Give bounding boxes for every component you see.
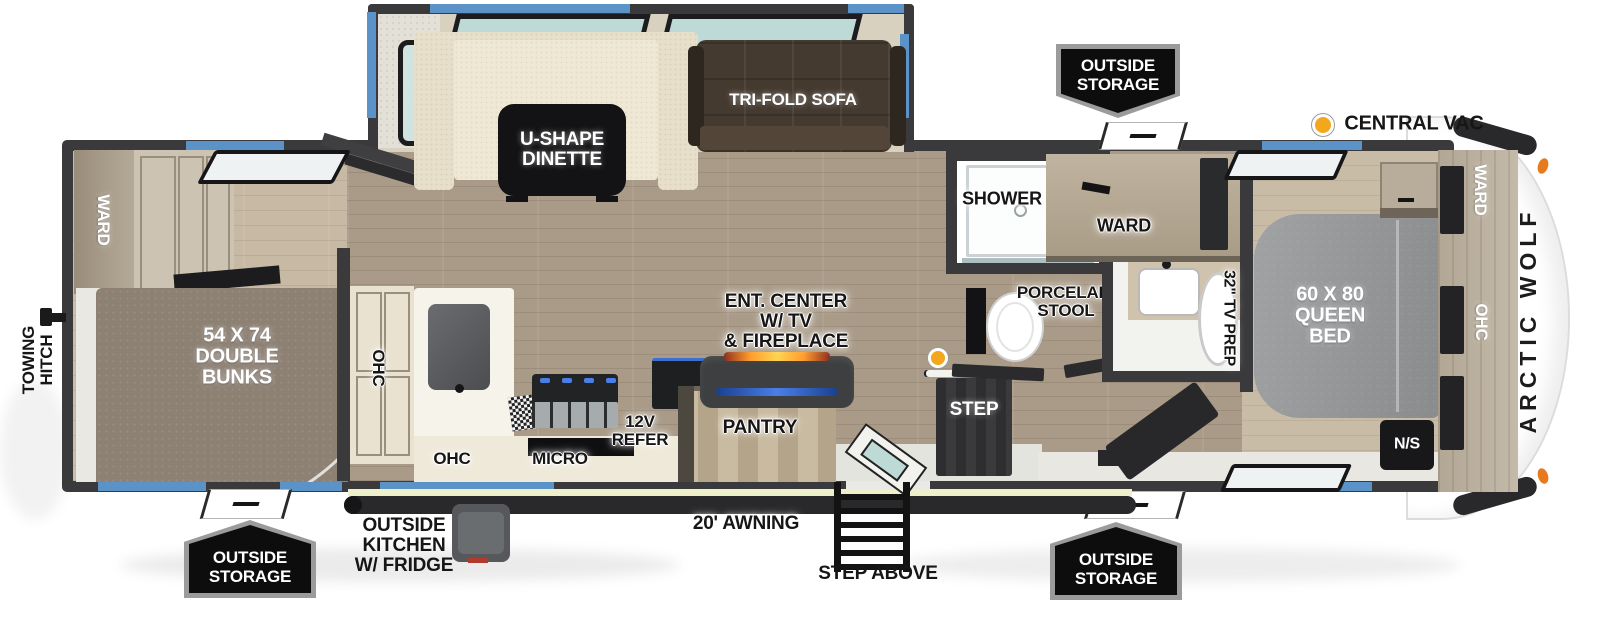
bunk-label: 54 X 74 DOUBLE BUNKS [195, 326, 278, 389]
faucet-icon [455, 384, 464, 393]
clearance-light-icon [1536, 157, 1550, 175]
bedroom-door-stub [1098, 450, 1124, 466]
cabinet-handle-icon [1398, 198, 1414, 202]
roof-vent [197, 150, 351, 184]
shower-label: SHOWER [962, 190, 1042, 209]
bedroom-wall [1240, 150, 1253, 392]
outside-storage-badge: OUTSIDE STORAGE [1050, 522, 1182, 600]
clearance-light-icon [1536, 467, 1550, 485]
outside-fridge-latch [468, 558, 488, 563]
tv-icon [716, 388, 838, 396]
window-strip [1262, 141, 1362, 150]
bath-ward-panel [1200, 158, 1228, 250]
step-above-label: STEP ABOVE [818, 564, 937, 584]
burner-icon [606, 378, 616, 383]
outside-storage-label: OUTSIDE STORAGE [1056, 56, 1180, 94]
headboard-slot [1440, 376, 1464, 450]
roof-vent [1223, 150, 1348, 180]
nightstand-label: N/S [1394, 437, 1420, 454]
bunk-ward-label: WARD [94, 194, 112, 245]
fireplace-icon [724, 352, 830, 361]
stool-label: PORCELAIN STOOL [1017, 284, 1115, 320]
bedroom-ohc-label: OHC [1472, 303, 1490, 340]
headboard-slot [1440, 286, 1464, 354]
headboard-slot [1440, 166, 1464, 234]
bedroom-ward-label: WARD [1471, 164, 1489, 215]
pantry-label: PANTRY [723, 418, 798, 438]
vanity-wall [1102, 371, 1248, 382]
kitchen-ohc-upper-label: OHC [369, 349, 387, 386]
central-vac-label: CENTRAL VAC [1344, 114, 1483, 135]
refer-label: 12V REFER [612, 413, 669, 449]
hitch-icon [50, 313, 66, 322]
pantry-side-panel [678, 386, 694, 482]
dinette-bench [414, 32, 454, 190]
window-strip [367, 12, 376, 118]
door-handle-icon [1129, 134, 1156, 138]
awning-label: 20' AWNING [693, 514, 799, 534]
outside-fridge-face [458, 512, 504, 554]
kitchen-ohc-lower-label: OHC [433, 450, 470, 468]
central-vac-port-icon [928, 348, 948, 368]
sofa-seat-front [700, 126, 888, 150]
floorplan-canvas: ARCTIC WOLF U-SHAPE DINETTE TRI-FOLD SOF… [0, 0, 1600, 621]
bedroom-overhead-cabinet-edge [1380, 208, 1438, 218]
outside-storage-label: OUTSIDE STORAGE [184, 548, 316, 586]
stove-grate [532, 402, 618, 428]
outside-kitchen-label: OUTSIDE KITCHEN W/ FRIDGE [355, 516, 453, 576]
ground-shadow [0, 380, 70, 520]
outside-fridge-icon [452, 504, 510, 562]
dinette-table-foot [506, 196, 528, 202]
cabinet-door [140, 156, 176, 290]
sofa-armrest [890, 46, 906, 146]
kitchen-sink [428, 304, 490, 390]
central-vac-icon [1312, 114, 1334, 136]
step-label: STEP [950, 400, 999, 420]
awning-strip [348, 489, 1132, 496]
window-strip [430, 4, 630, 13]
burner-icon [584, 378, 594, 383]
bath-ward-label: WARD [1097, 217, 1151, 236]
outside-storage-badge: OUTSIDE STORAGE [184, 520, 316, 598]
bed-seam [1396, 220, 1399, 412]
entertainment-center [700, 356, 854, 408]
cabinet-door [384, 376, 410, 456]
micro-label: MICRO [532, 450, 588, 468]
towing-hitch-label: TOWING HITCH [20, 326, 56, 394]
burner-icon [540, 378, 550, 383]
storage-door-icon [1098, 122, 1188, 150]
cabinet-door [356, 376, 382, 456]
window-strip [848, 4, 904, 13]
burner-icon [562, 378, 572, 383]
dinette-label: U-SHAPE DINETTE [520, 130, 604, 170]
dinette-table-foot [596, 196, 618, 202]
outside-storage-badge: OUTSIDE STORAGE [1056, 44, 1180, 118]
sofa-label: TRI-FOLD SOFA [729, 91, 857, 109]
step-ladder-icon [834, 482, 910, 572]
toilet-tank [966, 288, 986, 354]
vanity-wall [1102, 256, 1113, 380]
step-platform [936, 378, 1012, 476]
brand-wordmark: ARCTIC WOLF [1516, 207, 1540, 434]
tv-prep-label: 32" TV PREP [1220, 270, 1237, 366]
vanity-sink [1138, 268, 1200, 316]
outside-storage-label: OUTSIDE STORAGE [1050, 550, 1182, 588]
window-strip [186, 141, 284, 150]
window-strip [98, 482, 206, 491]
bed-label: 60 X 80 QUEEN BED [1295, 285, 1365, 348]
door-handle-icon [232, 502, 259, 506]
roof-vent [1220, 464, 1352, 492]
awning-roller-cap [344, 496, 362, 514]
ent-center-label: ENT. CENTER W/ TV & FIREPLACE [724, 292, 848, 352]
kitchen-wall [337, 248, 350, 481]
storage-door-icon [200, 489, 293, 519]
